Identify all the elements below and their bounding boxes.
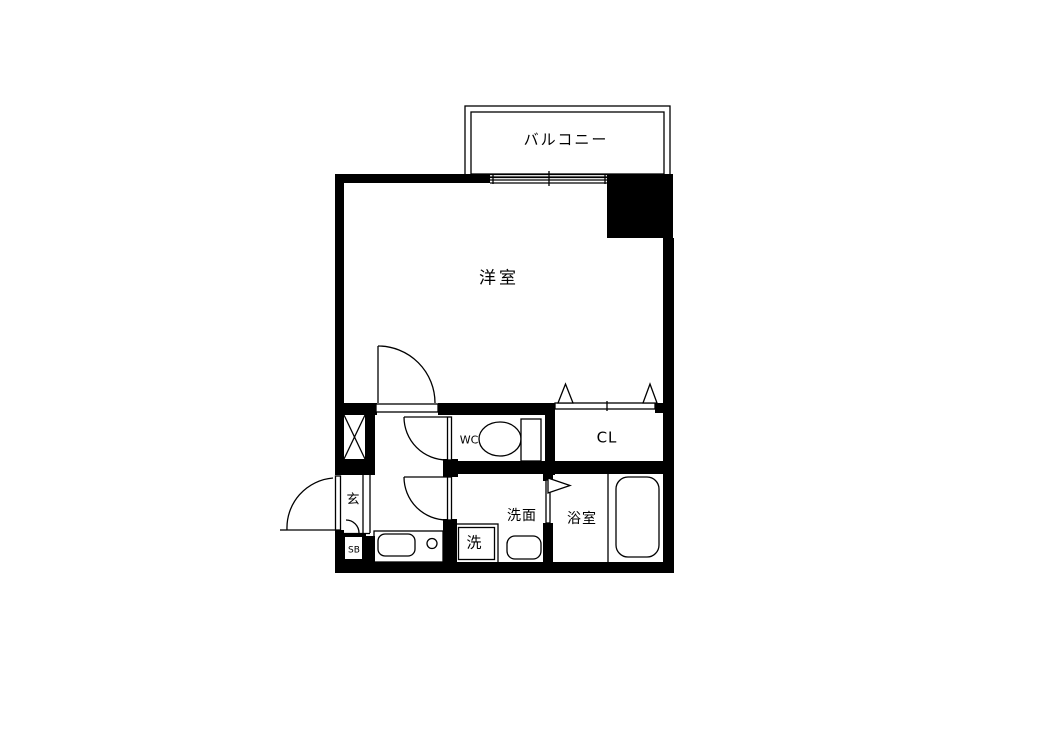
corner-pillar (607, 174, 673, 238)
main-room-door-arc (376, 346, 438, 412)
entrance-door-arc (280, 476, 341, 530)
closet-folding-door-icon (555, 384, 657, 411)
washroom-label: 洗面 (507, 509, 537, 523)
wc-door-arc (404, 417, 452, 460)
genkan-door-arc (346, 520, 359, 533)
outer-wall-left-upper (335, 174, 344, 475)
bath-divider-wall-bottom (543, 523, 553, 563)
bathtub-icon (616, 477, 659, 557)
floorplan-canvas: バルコニー 洋室 WC CL 玄 SB 洗 洗面 浴室 (0, 0, 1040, 745)
bathroom-label: 浴室 (567, 512, 597, 526)
outer-wall-bottom (335, 562, 674, 573)
floorplan-drawing (0, 0, 1040, 745)
closet-label: CL (597, 431, 618, 446)
western-room-label: 洋室 (479, 271, 519, 288)
bathroom-folding-door-icon (548, 478, 570, 493)
balcony-label: バルコニー (524, 133, 609, 148)
closet-right-stub-wall (655, 403, 674, 413)
pipe-space-x (344, 415, 365, 459)
shoe-box-label: SB (348, 547, 360, 556)
wet-area-top-wall (443, 461, 665, 474)
balcony-window-sliding-door (490, 171, 607, 186)
bathroom-fittings (546, 474, 659, 562)
laundry-label: 洗 (466, 536, 481, 551)
wc-top-wall (438, 403, 555, 415)
outer-wall-top (335, 174, 490, 183)
washroom-door-arc (404, 477, 452, 520)
toilet-label: WC (460, 435, 479, 446)
entrance-label: 玄 (346, 494, 359, 507)
toilet-icon (479, 419, 541, 461)
walls (335, 174, 674, 573)
pipe-space-right-wall (365, 413, 375, 463)
stove-burner-icon (427, 539, 437, 549)
kitchen-sink-icon (378, 534, 415, 556)
kitchen-counter (374, 531, 443, 562)
washroom-sink-icon (507, 536, 541, 559)
